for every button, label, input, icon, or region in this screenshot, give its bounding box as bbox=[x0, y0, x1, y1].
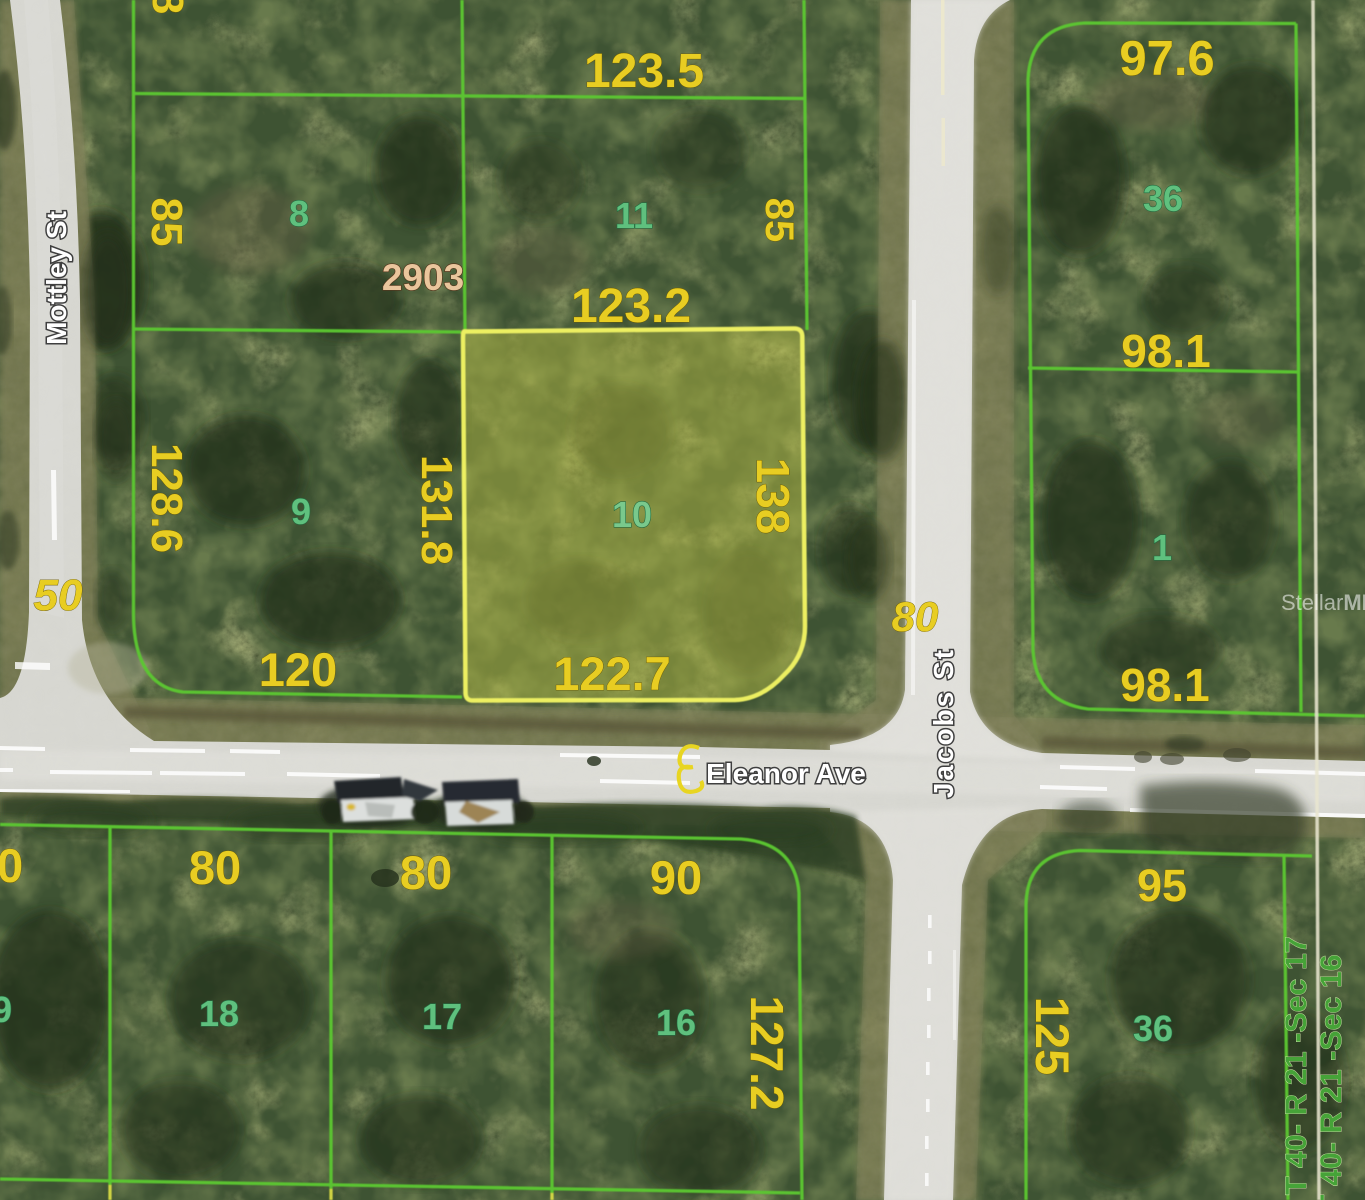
svg-text:StellarMLS: StellarMLS bbox=[1281, 590, 1365, 615]
svg-text:17: 17 bbox=[422, 996, 462, 1037]
svg-text:2903: 2903 bbox=[382, 257, 464, 298]
svg-text:95: 95 bbox=[1137, 860, 1187, 911]
svg-text:Mottley St: Mottley St bbox=[41, 211, 72, 345]
svg-text:8: 8 bbox=[143, 0, 192, 14]
svg-text:85: 85 bbox=[142, 198, 191, 247]
svg-text:98.1: 98.1 bbox=[1121, 325, 1211, 377]
svg-text:123.5: 123.5 bbox=[584, 45, 704, 98]
svg-text:16: 16 bbox=[656, 1002, 696, 1043]
svg-text:85: 85 bbox=[757, 198, 801, 243]
svg-text:T 40- R 21 -Sec 16: T 40- R 21 -Sec 16 bbox=[1315, 954, 1348, 1200]
svg-text:97.6: 97.6 bbox=[1119, 32, 1214, 86]
svg-text:80: 80 bbox=[892, 593, 939, 640]
svg-text:127.2: 127.2 bbox=[741, 995, 793, 1110]
svg-text:9: 9 bbox=[291, 491, 311, 532]
svg-text:90: 90 bbox=[650, 851, 702, 904]
svg-text:36: 36 bbox=[1133, 1008, 1173, 1049]
svg-text:50: 50 bbox=[34, 571, 83, 620]
svg-text:18: 18 bbox=[199, 993, 239, 1034]
svg-text:131.8: 131.8 bbox=[412, 455, 461, 565]
svg-text:T 40- R 21 -Sec 17: T 40- R 21 -Sec 17 bbox=[1280, 936, 1313, 1195]
svg-text:80: 80 bbox=[189, 841, 241, 894]
svg-text:122.7: 122.7 bbox=[553, 647, 671, 700]
svg-text:80: 80 bbox=[0, 839, 23, 892]
svg-text:125: 125 bbox=[1026, 997, 1079, 1075]
svg-text:10: 10 bbox=[612, 494, 652, 535]
svg-text:123.2: 123.2 bbox=[571, 280, 691, 333]
svg-text:80: 80 bbox=[400, 846, 452, 899]
svg-text:8: 8 bbox=[289, 193, 309, 234]
svg-text:1: 1 bbox=[1152, 527, 1172, 568]
svg-text:138: 138 bbox=[747, 458, 799, 535]
svg-text:11: 11 bbox=[615, 195, 653, 236]
svg-text:120: 120 bbox=[259, 643, 337, 696]
svg-text:Eleanor Ave: Eleanor Ave bbox=[706, 758, 866, 789]
svg-text:36: 36 bbox=[1143, 178, 1183, 219]
svg-text:128.6: 128.6 bbox=[142, 443, 191, 553]
svg-text:Jacobs St: Jacobs St bbox=[928, 648, 959, 798]
svg-text:98.1: 98.1 bbox=[1120, 659, 1210, 711]
svg-text:9: 9 bbox=[0, 989, 12, 1030]
